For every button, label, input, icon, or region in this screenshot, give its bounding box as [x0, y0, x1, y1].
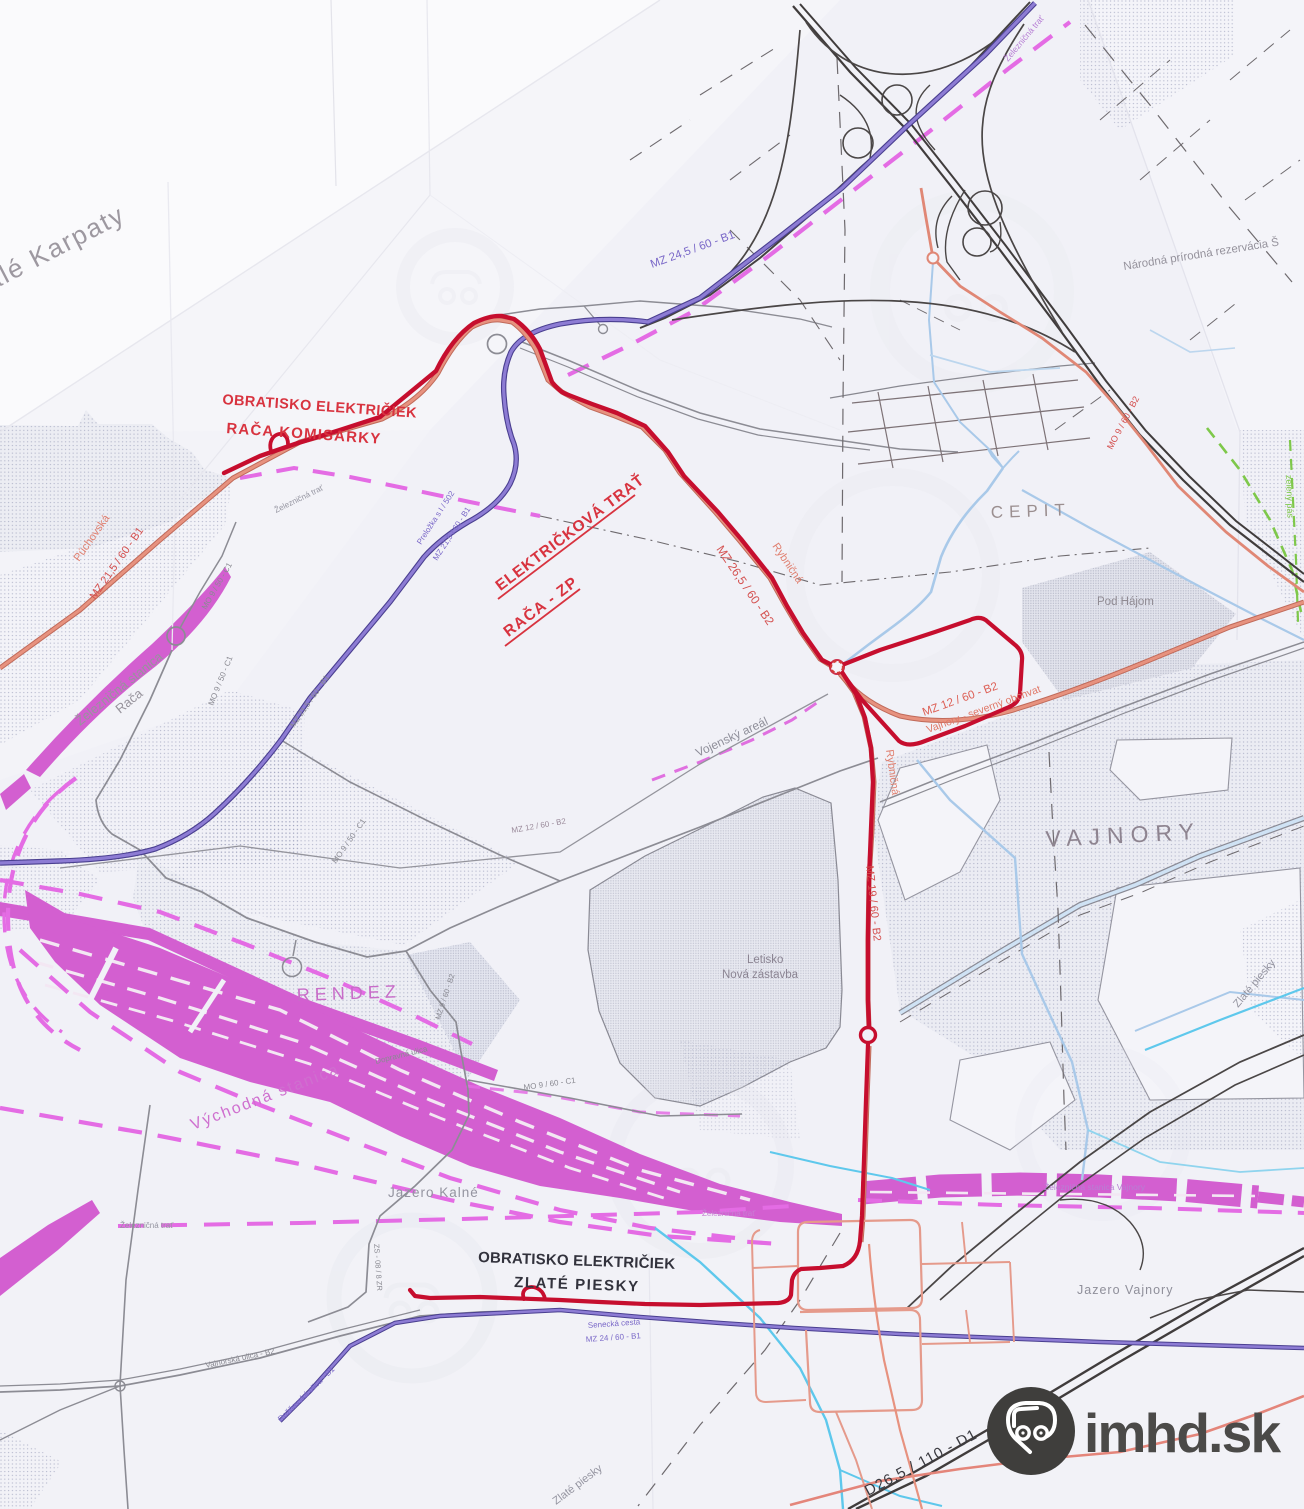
svg-text:Nová zástavba: Nová zástavba — [722, 969, 799, 981]
svg-text:Železničná trať: Železničná trať — [120, 1221, 174, 1230]
svg-text:Pod Hájom: Pod Hájom — [1097, 596, 1154, 608]
svg-text:Železničná trať: Železničná trať — [702, 1209, 756, 1218]
svg-text:Jazero Kalné: Jazero Kalné — [388, 1185, 479, 1200]
svg-text:CEPIT: CEPIT — [990, 500, 1071, 522]
svg-text:zelený pás: zelený pás — [1284, 475, 1296, 519]
svg-text:RENDEZ: RENDEZ — [296, 981, 401, 1005]
svg-text:Železničná stanica Vajnory: Železničná stanica Vajnory — [1044, 1182, 1146, 1192]
svg-text:Letisko: Letisko — [747, 954, 783, 966]
svg-text:Jazero Vajnory: Jazero Vajnory — [1077, 1283, 1173, 1297]
svg-text:imhd.sk: imhd.sk — [1084, 1402, 1281, 1464]
